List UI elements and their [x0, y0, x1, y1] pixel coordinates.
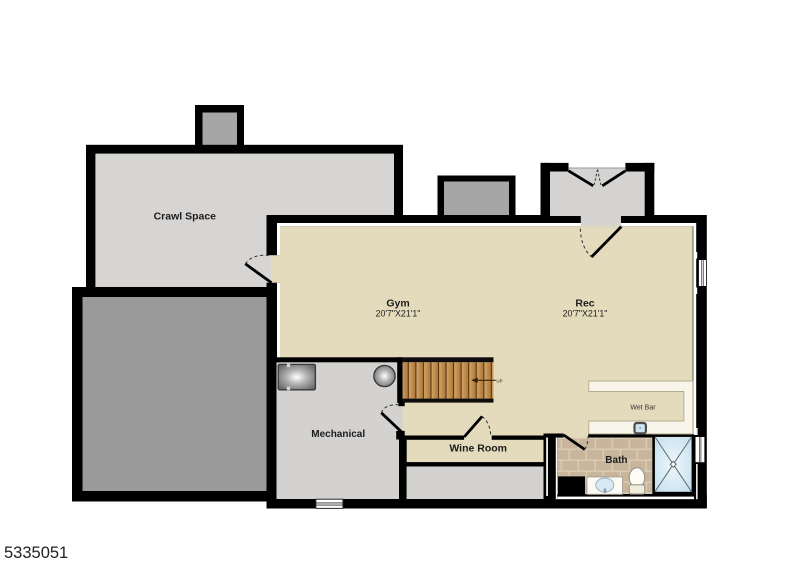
svg-text:Bath: Bath — [605, 455, 627, 466]
svg-text:Wet Bar: Wet Bar — [630, 405, 656, 412]
svg-text:5335051: 5335051 — [4, 544, 68, 562]
svg-text:20'7"X21'1": 20'7"X21'1" — [376, 309, 421, 319]
svg-text:Mechanical: Mechanical — [311, 429, 365, 440]
svg-text:20'7"X21'1": 20'7"X21'1" — [563, 309, 608, 319]
svg-text:Crawl Space: Crawl Space — [154, 211, 217, 223]
svg-text:Wine Room: Wine Room — [449, 443, 507, 455]
svg-text:UP: UP — [496, 378, 502, 383]
